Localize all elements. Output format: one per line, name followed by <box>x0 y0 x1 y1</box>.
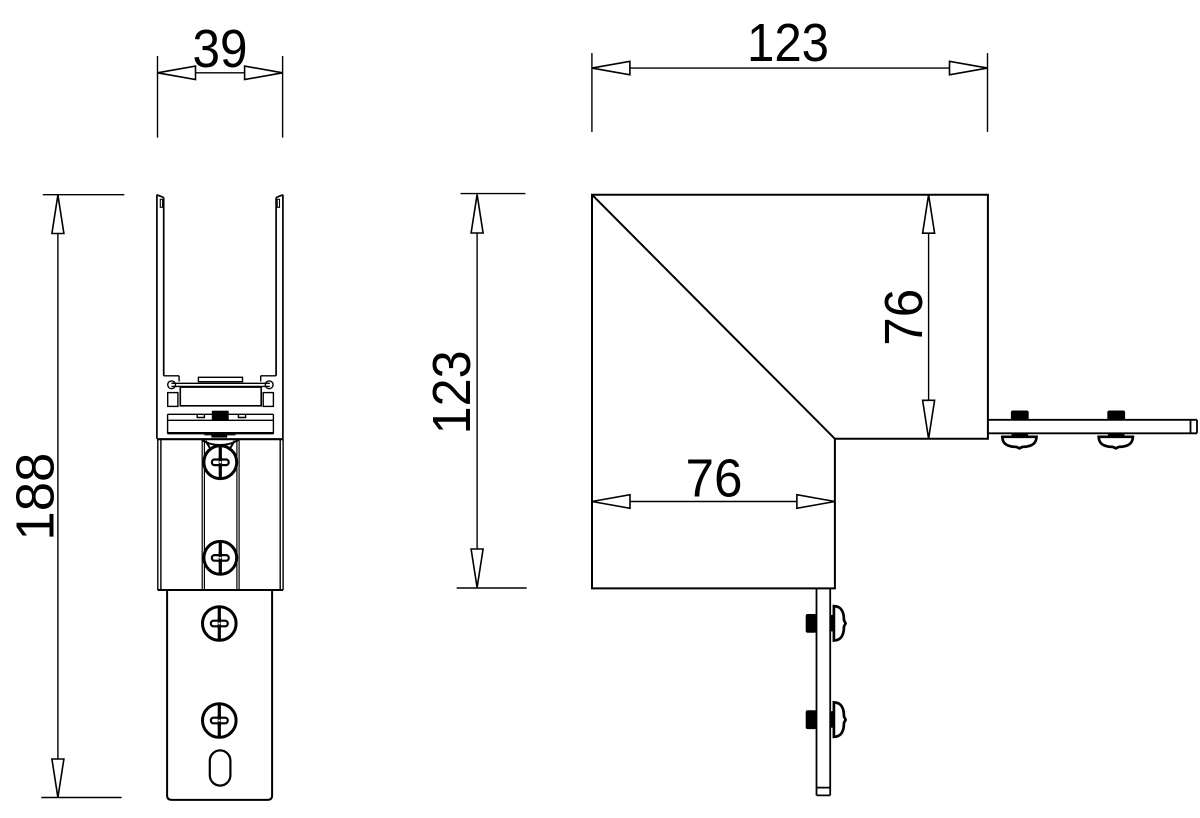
svg-text:188: 188 <box>6 453 66 541</box>
svg-text:76: 76 <box>874 289 934 346</box>
svg-text:39: 39 <box>193 19 248 79</box>
svg-text:123: 123 <box>747 13 829 73</box>
svg-text:123: 123 <box>422 350 482 434</box>
svg-text:76: 76 <box>686 449 743 509</box>
